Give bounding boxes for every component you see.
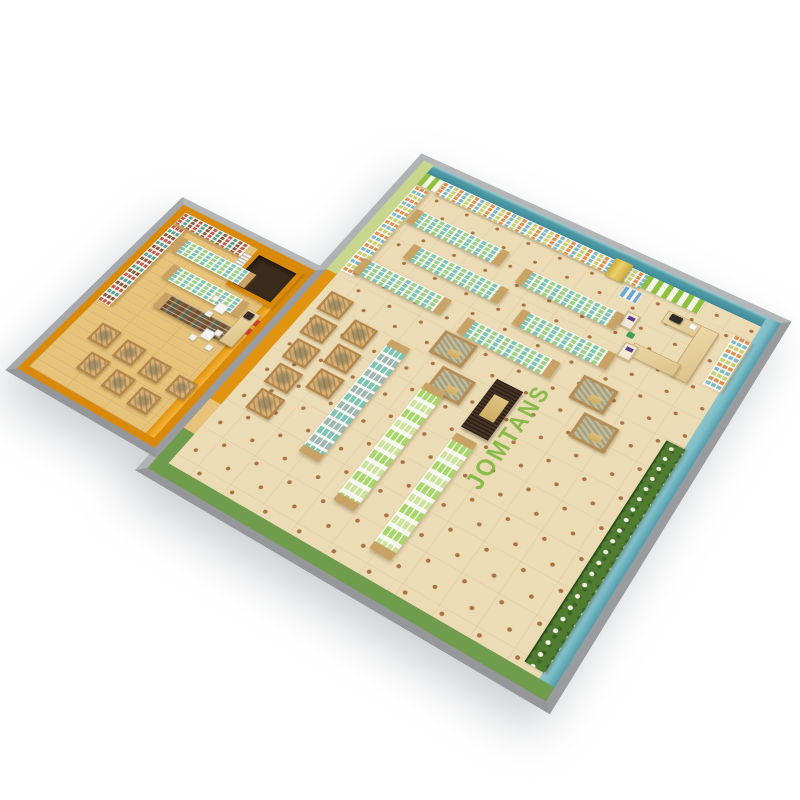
isometric-plan: JOMTANS	[0, 84, 800, 790]
store-3d-floorplan-render: JOMTANS	[0, 0, 800, 800]
purple-price-sign	[627, 316, 636, 322]
purple-price-sign	[625, 346, 634, 353]
render-shadow: JOMTANS	[0, 0, 800, 800]
